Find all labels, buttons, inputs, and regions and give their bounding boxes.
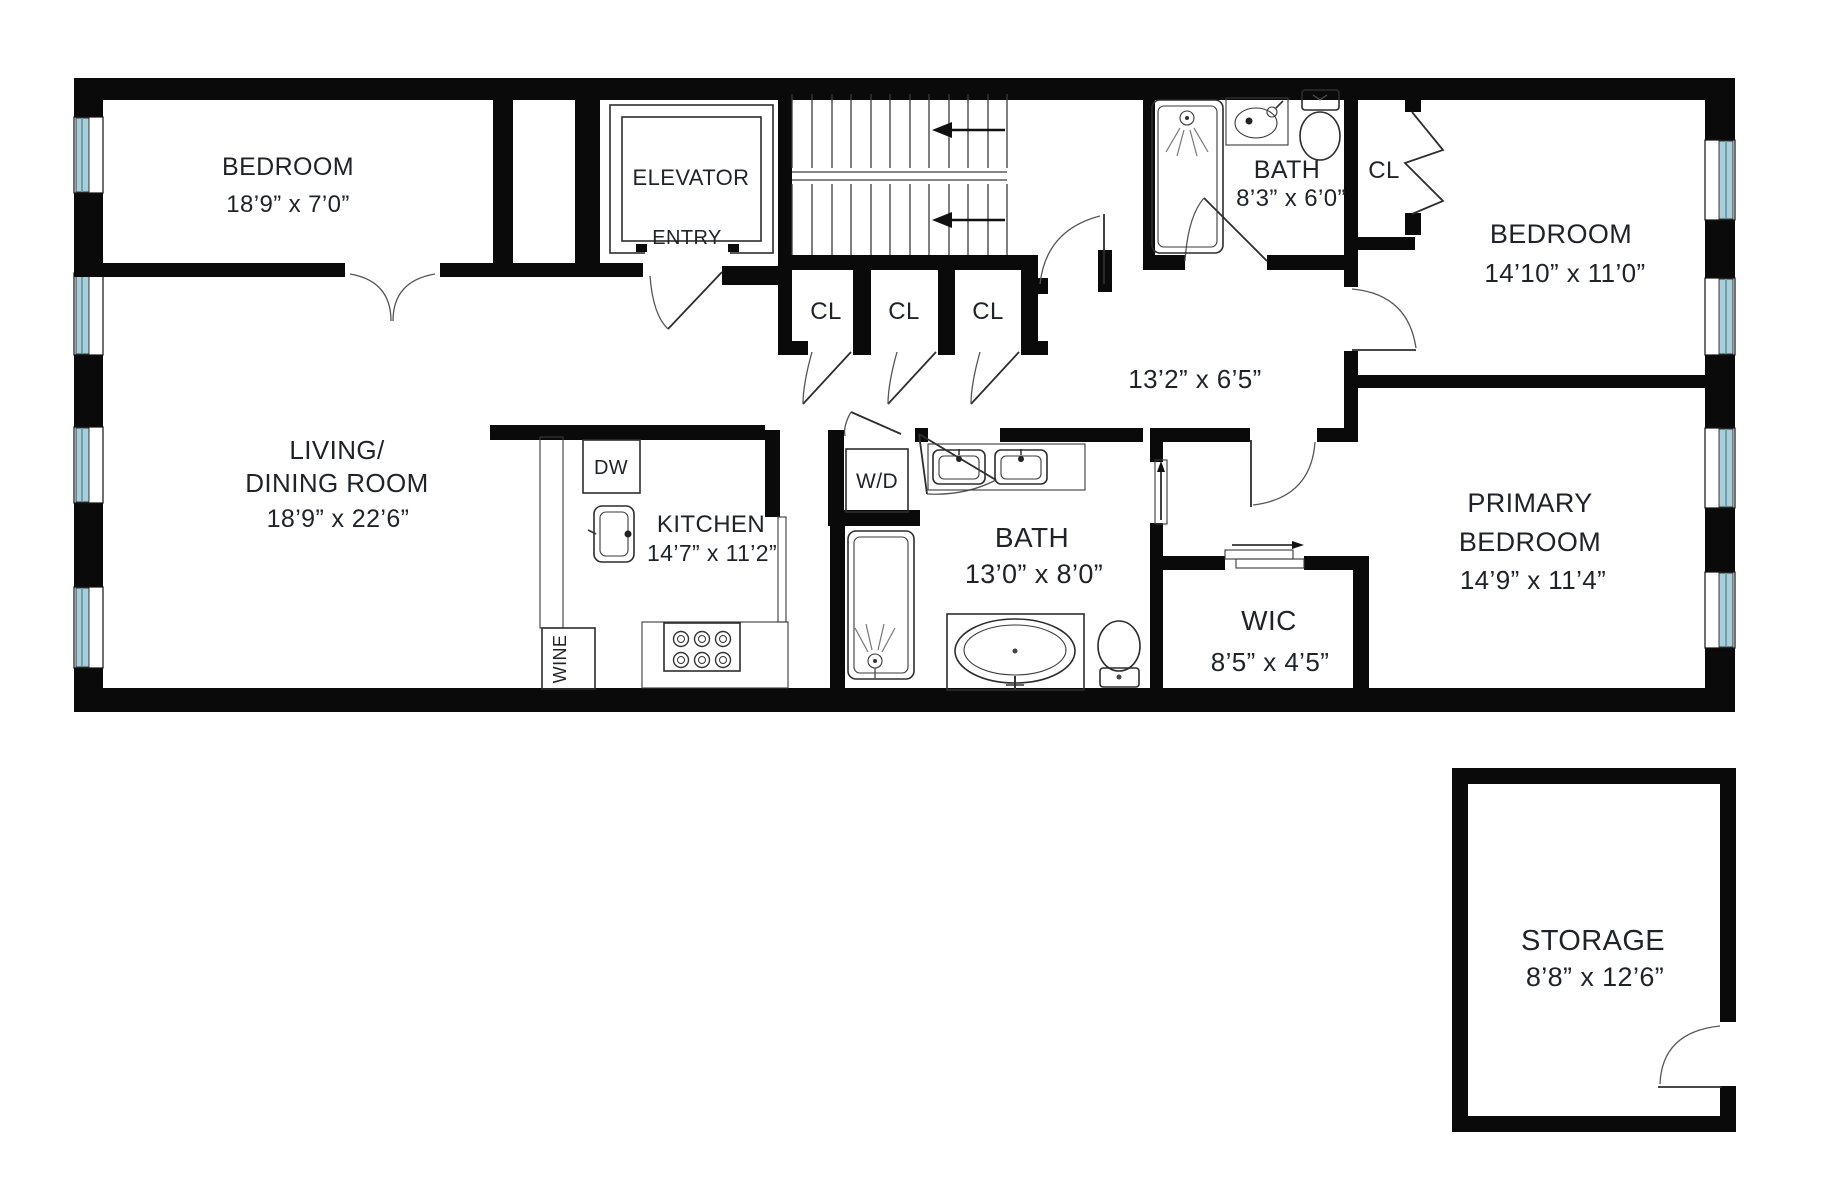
window-icon: [1705, 428, 1735, 508]
closet-door: [971, 352, 1019, 404]
shower-icon: [848, 531, 914, 679]
bedroom2-door: [1352, 289, 1416, 350]
window-icon: [74, 427, 103, 503]
floor-plan-page: BEDROOM 18’9” x 7’0” ELEVATOR ENTRY CL C…: [0, 0, 1846, 1190]
window-icon: [74, 587, 103, 668]
bedroom1-dims: 18’9” x 7’0”: [226, 191, 350, 218]
toilet-icon: [1300, 90, 1340, 160]
shower-icon: [1152, 100, 1223, 253]
washer-dryer-door: [845, 412, 901, 436]
primary-bedroom-door: [1251, 440, 1315, 507]
window-icon: [74, 117, 103, 193]
floor-plan-drawing: BEDROOM 18’9” x 7’0” ELEVATOR ENTRY CL C…: [0, 0, 1846, 1190]
closet-door: [803, 352, 851, 404]
main-bath-name: BATH: [995, 522, 1069, 553]
window-icon: [1705, 572, 1735, 648]
double-door-bedroom1: [350, 274, 435, 321]
primary-name-line2: BEDROOM: [1459, 527, 1601, 557]
kitchen-peninsula: [778, 517, 786, 622]
storage-name: STORAGE: [1521, 925, 1665, 957]
wic-sliding-door: [1225, 541, 1304, 568]
hallway-dims: 13’2” x 6’5”: [1128, 364, 1261, 394]
wic-dims: 8’5” x 4’5”: [1211, 647, 1330, 677]
closet-door: [888, 352, 936, 404]
stove-icon: [664, 623, 740, 671]
closet3-label: CL: [972, 298, 1003, 325]
bedroom2-closet-bifold-door: [1405, 112, 1443, 214]
window-icon: [1705, 140, 1735, 220]
elevator-label: ELEVATOR: [633, 165, 750, 190]
upper-bath-dims: 8’3” x 6’0”: [1236, 185, 1346, 212]
double-sink-icon: [928, 444, 1085, 490]
bedroom2-name: BEDROOM: [1490, 219, 1632, 249]
elevator-entry-label: ENTRY: [652, 227, 721, 249]
living-dims: 18’9” x 22’6”: [267, 505, 410, 533]
storage-dims: 8’8” x 12’6”: [1526, 962, 1664, 992]
washer-dryer-label: W/D: [856, 470, 898, 493]
primary-name-line1: PRIMARY: [1467, 488, 1592, 518]
main-bath-dims: 13’0” x 8’0”: [965, 559, 1103, 589]
bedroom1-name: BEDROOM: [222, 153, 354, 181]
stair-hall-door: [1040, 214, 1104, 284]
kitchen-counter: [540, 437, 563, 628]
wine-cooler-label: WINE: [550, 635, 570, 684]
living-name-line1: LIVING/: [289, 435, 385, 465]
closet1-label: CL: [810, 298, 841, 325]
living-name-line2: DINING ROOM: [245, 468, 429, 498]
window-icon: [74, 273, 103, 355]
closet2-label: CL: [888, 298, 919, 325]
kitchen-name: KITCHEN: [657, 511, 765, 538]
bedroom2-dims: 14’10” x 11’0”: [1484, 258, 1645, 288]
kitchen-dims: 14’7” x 11’2”: [647, 540, 777, 566]
window-icon: [1705, 278, 1735, 355]
primary-dims: 14’9” x 11’4”: [1460, 565, 1606, 595]
sink-icon: [1226, 98, 1288, 145]
entry-foyer-door: [650, 272, 722, 329]
toilet-icon: [1098, 621, 1140, 687]
wic-name: WIC: [1241, 605, 1297, 636]
bedroom2-closet-label: CL: [1368, 157, 1399, 184]
dishwasher-label: DW: [594, 457, 628, 479]
kitchen-sink-icon: [588, 506, 634, 562]
bath-pocket-door: [1155, 460, 1167, 524]
bathtub-icon: [947, 614, 1084, 690]
upper-bath-name: BATH: [1254, 156, 1320, 184]
staircase: [792, 94, 1007, 255]
